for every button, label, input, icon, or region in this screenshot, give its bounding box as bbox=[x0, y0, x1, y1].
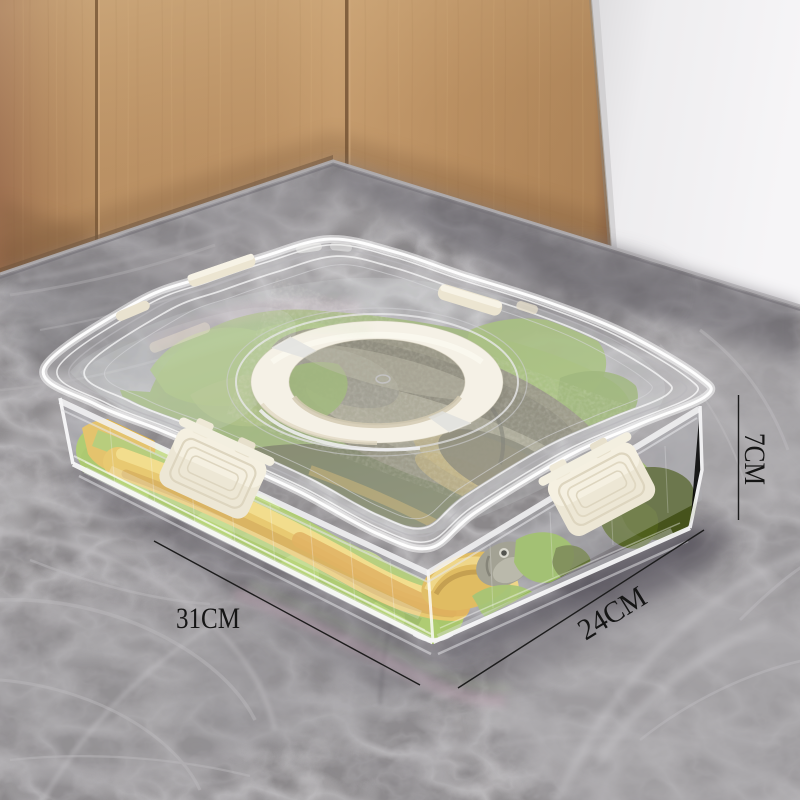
svg-text:31CM: 31CM bbox=[176, 602, 240, 635]
svg-text:7CM: 7CM bbox=[738, 433, 771, 485]
